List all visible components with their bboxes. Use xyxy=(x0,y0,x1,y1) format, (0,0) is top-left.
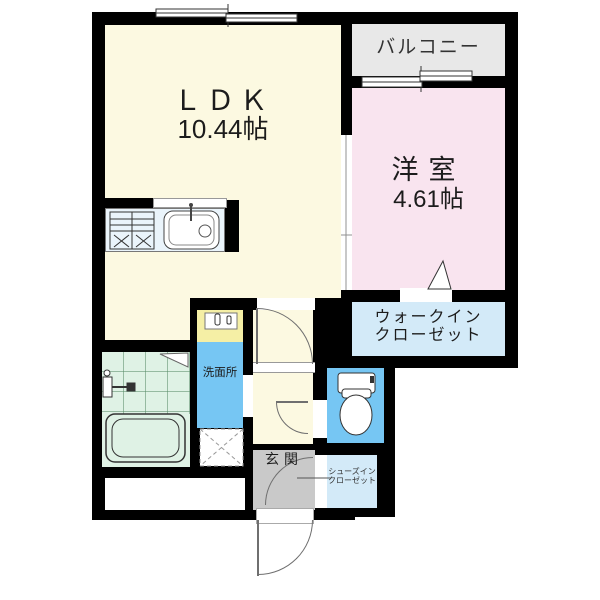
opening-toilet-door xyxy=(313,400,327,438)
front-door-arc xyxy=(258,520,313,575)
opening-western-wic xyxy=(400,288,452,302)
partition-strip xyxy=(341,135,352,290)
ldk-label: ＬＤＫ xyxy=(105,86,341,115)
room-washbasin xyxy=(197,310,243,342)
floor-plan: バルコニー ＬＤＫ 10.44帖 洋室 4.61帖 ウォークイン クローゼット … xyxy=(0,0,600,600)
toilet-door-leaf xyxy=(276,401,308,403)
entrance-label: 玄関 xyxy=(255,452,313,467)
western-room-size-label: 4.61帖 xyxy=(352,187,505,212)
walk-in-closet-label-line1: ウォークイン xyxy=(352,310,505,327)
balcony-label: バルコニー xyxy=(352,38,505,58)
front-door-leaf xyxy=(257,520,259,576)
opening-washroom-door xyxy=(243,375,253,417)
ldk-door-leaf xyxy=(256,308,258,364)
kitchen-wall-bar xyxy=(105,198,153,208)
western-room-label: 洋室 xyxy=(352,156,505,184)
washroom-label: 洗面所 xyxy=(197,367,243,379)
kitchen-ledge xyxy=(153,198,227,208)
room-ldk-extension xyxy=(105,298,190,340)
ldk-size-label: 10.44帖 xyxy=(105,116,341,143)
shoes-closet-label-line2: クローゼット xyxy=(326,477,378,485)
room-toilet xyxy=(327,368,384,443)
walk-in-closet-label-line2: クローゼット xyxy=(352,328,505,345)
room-ldk xyxy=(105,25,341,298)
kitchen-counter xyxy=(105,208,225,252)
kitchen-wall-stub xyxy=(225,200,239,252)
bathroom-tile-grid xyxy=(102,352,190,414)
outside-strip xyxy=(105,478,245,510)
room-washroom xyxy=(197,342,243,428)
entrance-step-line xyxy=(249,444,327,450)
